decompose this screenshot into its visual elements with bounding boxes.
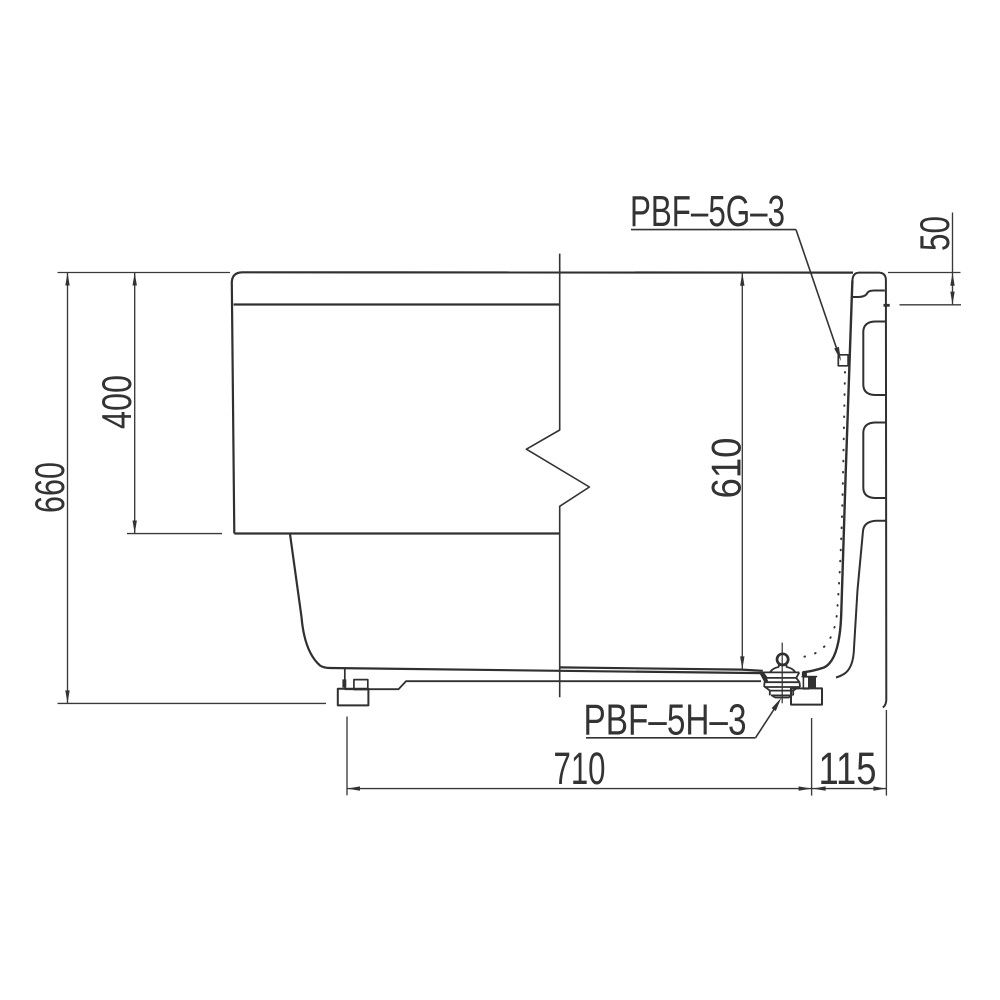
svg-text:610: 610 bbox=[703, 438, 750, 499]
svg-text:PBF–5H–3: PBF–5H–3 bbox=[584, 696, 747, 745]
svg-text:660: 660 bbox=[26, 462, 73, 513]
svg-text:710: 710 bbox=[554, 743, 606, 794]
svg-text:400: 400 bbox=[93, 375, 140, 429]
svg-text:115: 115 bbox=[819, 743, 877, 794]
svg-text:50: 50 bbox=[911, 216, 958, 251]
svg-text:PBF–5G–3: PBF–5G–3 bbox=[630, 187, 785, 236]
